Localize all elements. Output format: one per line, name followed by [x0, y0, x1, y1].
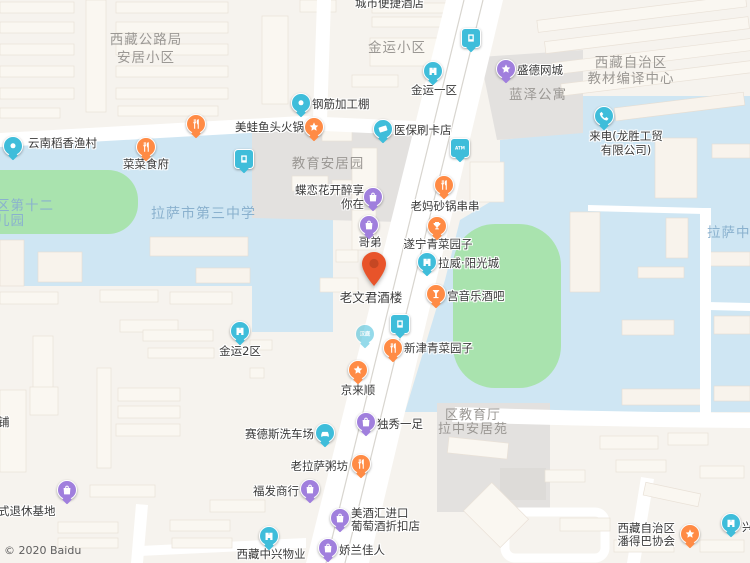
- poi-pu-cut-label[interactable]: 铺: [0, 416, 10, 429]
- poi-gong-yinyue-jiuba-label[interactable]: 宫音乐酒吧: [447, 290, 505, 303]
- area-label-qu-jiaoyuting: 区教育厅拉中安居苑: [438, 409, 508, 437]
- poi-jinyun-2qu-icon[interactable]: [230, 321, 250, 341]
- poi-lawei-yangguangcheng-icon[interactable]: [417, 252, 437, 272]
- poi-saidesi-xichechang-label[interactable]: 赛德斯洗车场: [245, 428, 314, 441]
- poi-laoma-shaguo-label[interactable]: 老妈砂锅串串: [411, 200, 480, 213]
- poi-meijiuhui-label[interactable]: 美酒汇进口葡萄酒折扣店: [351, 507, 420, 533]
- poi-tuixiu-jidi-label[interactable]: 式退休基地: [0, 505, 56, 518]
- poi-xing-cut-icon[interactable]: [721, 513, 741, 533]
- poi-jinyun-2qu-label[interactable]: 金运2区: [219, 345, 261, 358]
- poi-fufa-shanghang-label[interactable]: 福发商行: [253, 485, 299, 498]
- poi-suining-qingcai-icon[interactable]: [427, 216, 447, 236]
- poi-dielianhua-icon[interactable]: [363, 187, 383, 207]
- poi-xinjin-qingcai-icon[interactable]: [383, 338, 403, 358]
- poi-suining-qingcai-label[interactable]: 遂宁青菜园子: [404, 238, 473, 251]
- poi-meiwa-yutou-label[interactable]: 美蛙鱼头火锅: [235, 121, 304, 134]
- poi-laowenjun-jiulou-label[interactable]: 老文君酒楼: [340, 291, 403, 305]
- poi-fufa-shanghang-icon[interactable]: [300, 479, 320, 499]
- poi-laoma-shaguo-icon[interactable]: [434, 175, 454, 195]
- poi-edge-pin-icon[interactable]: [3, 136, 23, 156]
- poi-xizang-zhongxing-wuye-label[interactable]: 西藏中兴物业: [237, 548, 306, 561]
- poi-yibao-shuakadian-icon[interactable]: [373, 119, 393, 139]
- poi-meijiuhui-icon[interactable]: [330, 508, 350, 528]
- poi-laidian-longsheng-icon[interactable]: [594, 106, 614, 126]
- poi-jiaolan-jiaren-icon[interactable]: [318, 538, 338, 558]
- area-label-lanze-gongyu: 蓝泽公寓: [509, 88, 567, 103]
- poi-jiaolan-jiaren-label[interactable]: 娇兰佳人: [339, 544, 385, 557]
- poi-laolasa-zhoufang-label[interactable]: 老拉萨粥坊: [291, 460, 349, 473]
- poi-duxiu-yizu-icon[interactable]: [356, 412, 376, 432]
- poi-hanting-faded-icon[interactable]: 汉庭: [355, 324, 375, 344]
- area-label-lasa-no3-school: 拉萨市第三中学: [151, 207, 256, 222]
- area-label-jiaocai-bianyi-zhongxin: 西藏自治区教材编译中心: [588, 55, 675, 87]
- poi-tuixiu-jidi-icon[interactable]: [57, 480, 77, 500]
- poi-dielianhua-label[interactable]: 蝶恋花开醉享你在: [295, 183, 364, 211]
- poi-xing-cut-label[interactable]: 兴: [742, 521, 750, 534]
- poi-stop-east-blue-icon[interactable]: [234, 149, 254, 169]
- poi-saidesi-xichechang-icon[interactable]: [315, 423, 335, 443]
- svg-text:汉庭: 汉庭: [360, 330, 371, 338]
- poi-caicai-shifu-icon[interactable]: [136, 137, 156, 157]
- poi-gangjin-jiagongpeng-label[interactable]: 钢筋加工棚: [312, 98, 370, 111]
- map-canvas[interactable]: 西藏公路局安居小区金运小区教育安居园西藏自治区教材编译中心蓝泽公寓区第十二儿园拉…: [0, 0, 750, 563]
- area-label-di12-youeryuan: 区第十二儿园: [0, 199, 54, 229]
- map-copyright: © 2020 Baidu: [4, 544, 81, 557]
- poi-gedi-icon[interactable]: [359, 215, 379, 235]
- poi-pandeba-xiehui-label[interactable]: 西藏自治区潘得巴协会: [618, 522, 676, 548]
- poi-yunnan-daoxiang-label[interactable]: 云南稻香渔村: [28, 137, 97, 150]
- poi-busstop-top-icon[interactable]: [461, 28, 481, 48]
- svg-text:ATM: ATM: [455, 146, 465, 151]
- poi-laidian-longsheng-label[interactable]: 来电(龙胜工贸有限公司): [589, 129, 663, 157]
- poi-pandeba-xiehui-icon[interactable]: [680, 524, 700, 544]
- poi-jinglaishun-label[interactable]: 京来顺: [341, 384, 376, 397]
- poi-yunnan-daoxiang-icon[interactable]: [186, 114, 206, 134]
- poi-jinyun-1qu-icon[interactable]: [423, 61, 443, 81]
- area-label-xizang-gonglu-ju: 西藏公路局安居小区: [110, 31, 183, 67]
- poi-chengshi-bianjie-hotel-label[interactable]: 城市便捷酒店: [355, 0, 424, 10]
- poi-gangjin-jiagongpeng-icon[interactable]: [291, 93, 311, 113]
- poi-lawei-yangguangcheng-label[interactable]: 拉威·阳光城: [438, 257, 499, 270]
- selected-pin-laowenjun-jiulou[interactable]: [362, 252, 386, 290]
- poi-xinjin-qingcai-label[interactable]: 新津青菜园子: [404, 342, 473, 355]
- poi-jinyun-1qu-label[interactable]: 金运一区: [411, 84, 457, 97]
- poi-gong-yinyue-jiuba-icon[interactable]: [426, 284, 446, 304]
- poi-jinglaishun-icon[interactable]: [348, 360, 368, 380]
- area-label-lasa-zhong: 拉萨中: [707, 226, 750, 241]
- poi-yibao-shuakadian-label[interactable]: 医保刷卡店: [394, 124, 452, 137]
- poi-xizang-zhongxing-wuye-icon[interactable]: [259, 526, 279, 546]
- area-label-jiaoyu-anjuyuan: 教育安居园: [292, 157, 365, 172]
- poi-shengde-wangcheng-icon[interactable]: [496, 59, 516, 79]
- poi-shengde-wangcheng-label[interactable]: 盛德网城: [517, 64, 563, 77]
- poi-busstop-mid-icon[interactable]: [390, 314, 410, 334]
- area-label-jinyun-xiaoqu: 金运小区: [368, 41, 426, 56]
- poi-atm-icon[interactable]: ATM: [450, 138, 470, 158]
- poi-meiwa-yutou-icon[interactable]: [304, 117, 324, 137]
- poi-duxiu-yizu-label[interactable]: 独秀一足: [377, 418, 423, 431]
- poi-laolasa-zhoufang-icon[interactable]: [351, 454, 371, 474]
